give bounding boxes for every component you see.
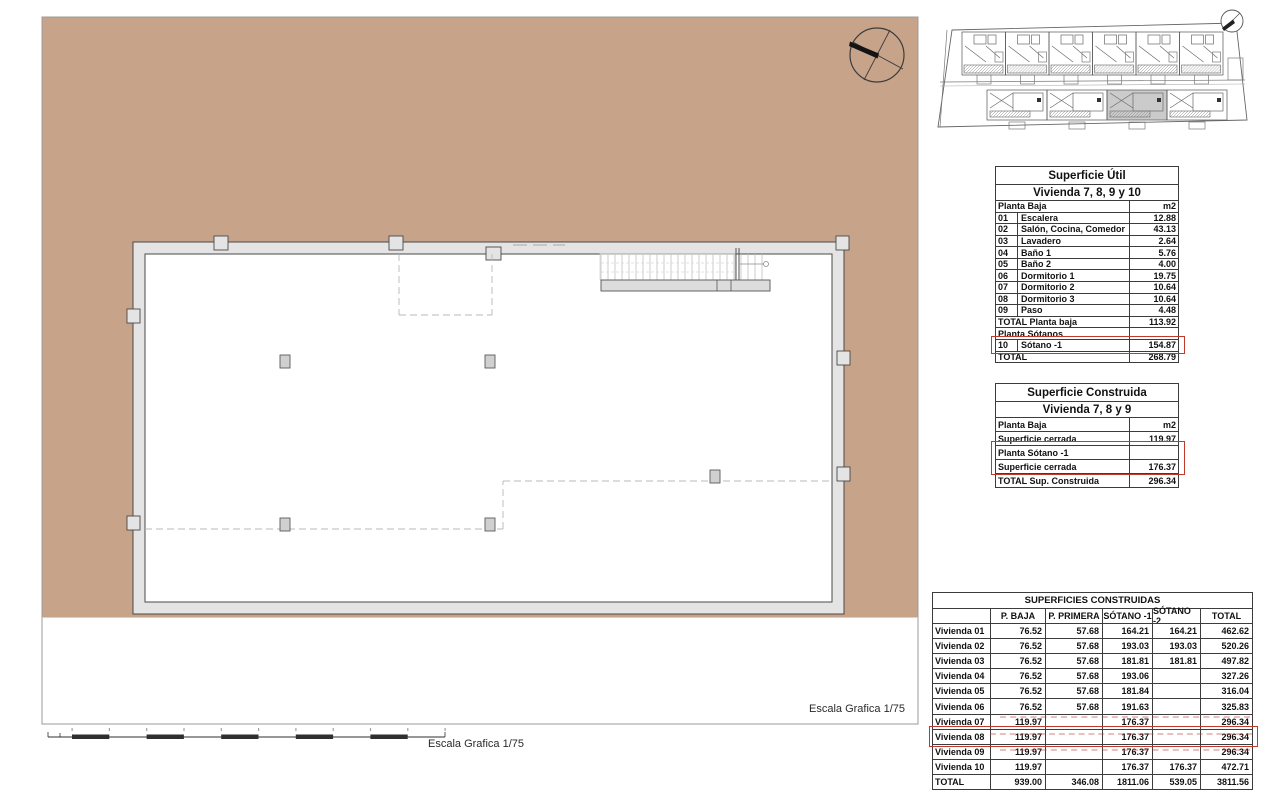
table-row: 05Baño 24.00 — [996, 258, 1178, 270]
table-row: 08Dormitorio 310.64 — [996, 293, 1178, 305]
table-row: Vivienda 0376.5257.68181.81181.81497.82 — [933, 653, 1252, 668]
house-row-top — [962, 32, 1223, 84]
resumen-total-row: TOTAL939.00346.081811.06539.053811.56 — [933, 774, 1252, 789]
table-row: 03Lavadero2.64 — [996, 235, 1178, 247]
resumen-header-row: P. BAJA P. PRIMERA SÓTANO -1 SÓTANO -2 T… — [933, 608, 1252, 623]
util-title: Superficie Útil — [996, 167, 1178, 184]
util-total-pb-row: TOTAL Planta baja 113.92 — [996, 316, 1178, 328]
table-row: Vivienda 07119.97176.37296.34 — [933, 714, 1252, 729]
superficie-util-table: Superficie Útil Vivienda 7, 8, 9 y 10 Pl… — [995, 166, 1179, 363]
construida-total-row: TOTAL Sup. Construida296.34 — [996, 473, 1178, 487]
table-row: 02Salón, Cocina, Comedor43.13 — [996, 223, 1178, 235]
table-row: 07Dormitorio 210.64 — [996, 281, 1178, 293]
basement-plan — [127, 236, 850, 614]
scale-label-plan: Escala Grafica 1/75 — [705, 703, 905, 715]
construida-header-row: Planta Baja m2 — [996, 417, 1178, 431]
util-header-row: Planta Baja m2 — [996, 200, 1178, 212]
util-sotano-row: 10 Sótano -1 154.87 — [996, 339, 1178, 351]
floor-plan-drawing — [30, 5, 925, 765]
util-sotanos-header-row: Planta Sótanos — [996, 327, 1178, 339]
table-row: Vivienda 0576.5257.68181.84316.04 — [933, 683, 1252, 698]
table-row: 04Baño 15.76 — [996, 246, 1178, 258]
resumen-title: SUPERFICIES CONSTRUIDAS — [933, 593, 1252, 608]
table-row: 06Dormitorio 119.75 — [996, 269, 1178, 281]
construida-title: Superficie Construida — [996, 384, 1178, 401]
graphic-scale-bar — [48, 728, 446, 739]
table-row: Superficie cerrada119.97 — [996, 431, 1178, 445]
table-row: Vivienda 0476.5257.68193.06327.26 — [933, 668, 1252, 683]
table-row: Planta Sótano -1 — [996, 445, 1178, 459]
table-row: Vivienda 0176.5257.68164.21164.21462.62 — [933, 623, 1252, 638]
table-row: Vivienda 09119.97176.37296.34 — [933, 744, 1252, 759]
table-row: Vivienda 0276.5257.68193.03193.03520.26 — [933, 638, 1252, 653]
superficies-construidas-table: SUPERFICIES CONSTRUIDAS P. BAJA P. PRIME… — [932, 592, 1253, 790]
table-row: Vivienda 0676.5257.68191.63325.83 — [933, 698, 1252, 713]
util-subtitle: Vivienda 7, 8, 9 y 10 — [996, 184, 1178, 200]
table-row: Vivienda 10119.97176.37176.37472.71 — [933, 759, 1252, 774]
util-total-row: TOTAL 268.79 — [996, 351, 1178, 363]
table-row: 09Paso4.48 — [996, 304, 1178, 316]
table-row: Superficie cerrada176.37 — [996, 459, 1178, 473]
superficie-construida-table: Superficie Construida Vivienda 7, 8 y 9 … — [995, 383, 1179, 488]
inner-floor — [145, 254, 832, 602]
construida-subtitle: Vivienda 7, 8 y 9 — [996, 401, 1178, 417]
table-row-vivienda-08: Vivienda 08119.97176.37296.34 — [933, 729, 1252, 744]
scale-label-bar: Escala Grafica 1/75 — [428, 738, 578, 750]
table-row: 01Escalera12.88 — [996, 212, 1178, 224]
stair-landing-wall — [601, 280, 770, 291]
keyplan-north-arrow-icon — [1221, 10, 1243, 32]
drawing-sheet: Escala Grafica 1/75 Escala Grafica 1/75 … — [0, 0, 1280, 800]
site-key-plan — [928, 5, 1258, 140]
